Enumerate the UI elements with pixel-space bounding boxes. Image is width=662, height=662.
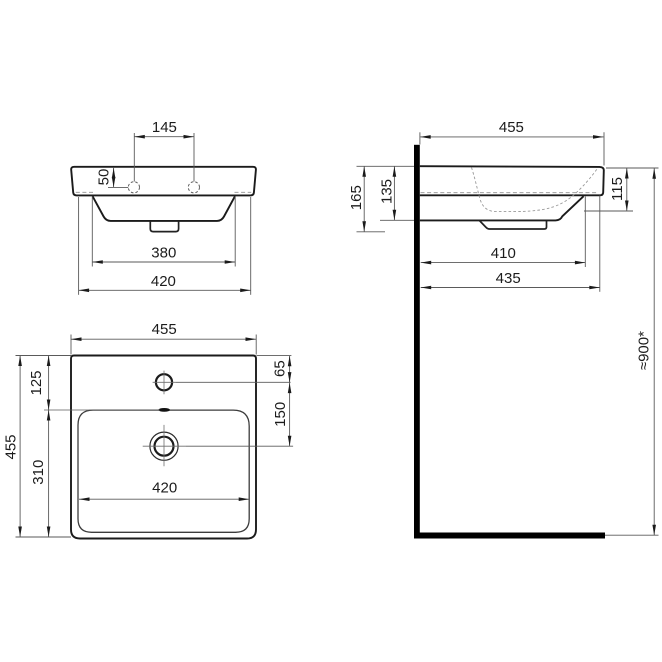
svg-text:435: 435 <box>496 270 521 287</box>
svg-text:410: 410 <box>491 245 516 262</box>
svg-text:50: 50 <box>96 169 113 186</box>
svg-text:455: 455 <box>152 321 177 338</box>
svg-text:380: 380 <box>151 245 176 262</box>
svg-text:150: 150 <box>272 402 289 427</box>
svg-text:420: 420 <box>151 273 176 290</box>
svg-text:165: 165 <box>348 185 365 210</box>
svg-text:125: 125 <box>28 370 45 395</box>
svg-text:135: 135 <box>379 179 396 204</box>
svg-text:115: 115 <box>609 177 626 201</box>
svg-text:455: 455 <box>2 434 19 459</box>
svg-text:≈900*: ≈900* <box>636 331 653 370</box>
svg-text:420: 420 <box>152 480 177 497</box>
svg-text:455: 455 <box>499 119 524 136</box>
svg-text:310: 310 <box>30 460 47 485</box>
svg-text:65: 65 <box>271 360 288 377</box>
svg-text:145: 145 <box>152 119 177 136</box>
